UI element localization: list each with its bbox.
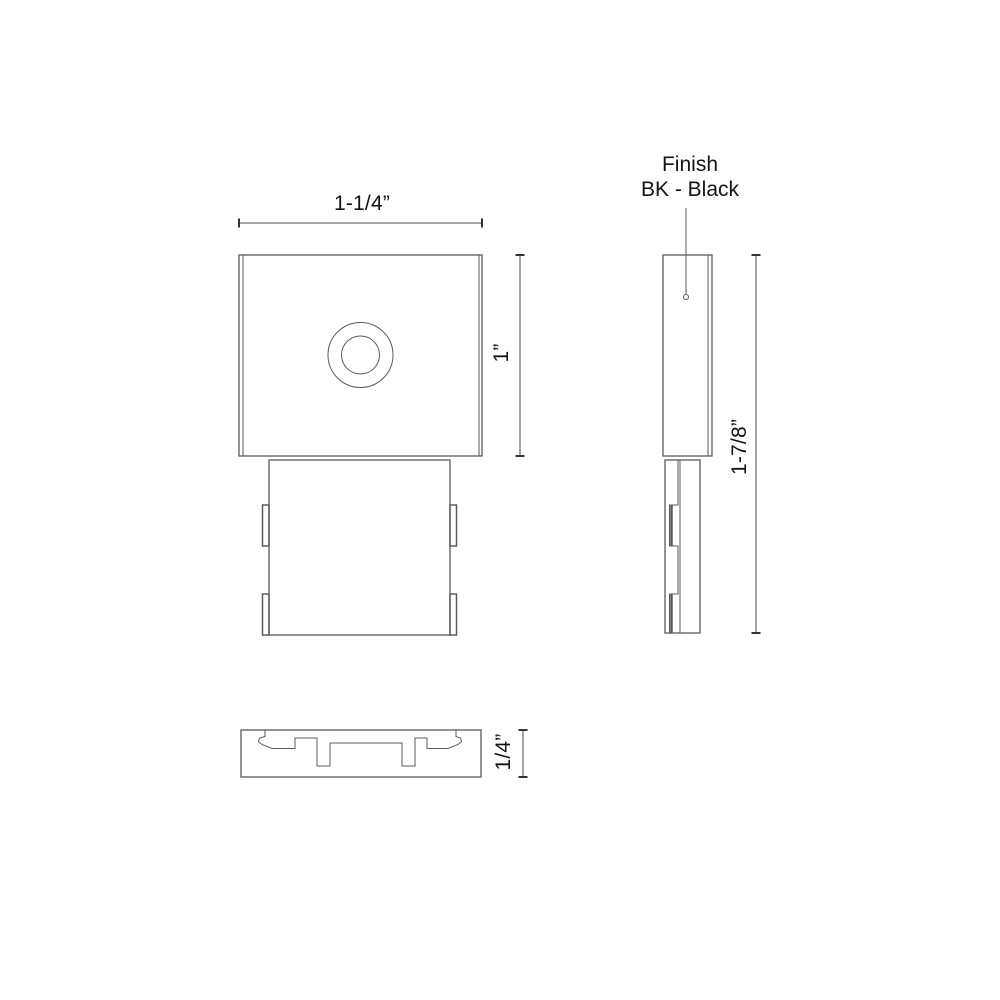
dim-front-height bbox=[516, 255, 525, 456]
mounting-hole-outer-circle bbox=[328, 323, 393, 388]
bottom-channel-profile bbox=[259, 730, 462, 766]
bottom-thickness-dimension-label: 1/4” bbox=[492, 734, 516, 771]
clip-tab-lower-left bbox=[263, 594, 270, 635]
mounting-hole-inner-circle bbox=[342, 336, 380, 374]
front-width-dimension-label: 1-1/4” bbox=[334, 192, 390, 216]
front-view bbox=[239, 255, 482, 635]
finish-leader bbox=[684, 208, 689, 300]
front-height-dimension-label: 1” bbox=[490, 343, 514, 362]
drawing-canvas: 1-1/4” 1” 1-7/8” 1/4” Finish BK - Black bbox=[0, 0, 1000, 1000]
clip-tab-upper-left bbox=[263, 505, 270, 546]
finish-callout-line1: Finish bbox=[590, 152, 790, 177]
finish-callout-line2: BK - Black bbox=[590, 177, 790, 202]
front-lower-body-outline bbox=[269, 460, 450, 635]
side-view bbox=[663, 255, 712, 633]
front-body-outline bbox=[239, 255, 482, 456]
dim-front-width bbox=[239, 219, 482, 228]
bottom-body-outline bbox=[241, 730, 481, 777]
bottom-view bbox=[241, 730, 481, 777]
dimension-lines bbox=[239, 219, 761, 778]
clip-tab-upper-right bbox=[450, 505, 457, 546]
side-height-dimension-label: 1-7/8” bbox=[728, 419, 752, 475]
finish-leader-dot bbox=[684, 295, 689, 300]
dim-side-height bbox=[752, 255, 761, 633]
side-body-outline bbox=[663, 255, 712, 456]
technical-drawing-svg bbox=[0, 0, 1000, 1000]
clip-tab-lower-right bbox=[450, 594, 457, 635]
finish-callout: Finish BK - Black bbox=[590, 152, 790, 202]
dim-bottom-thickness bbox=[519, 730, 528, 777]
